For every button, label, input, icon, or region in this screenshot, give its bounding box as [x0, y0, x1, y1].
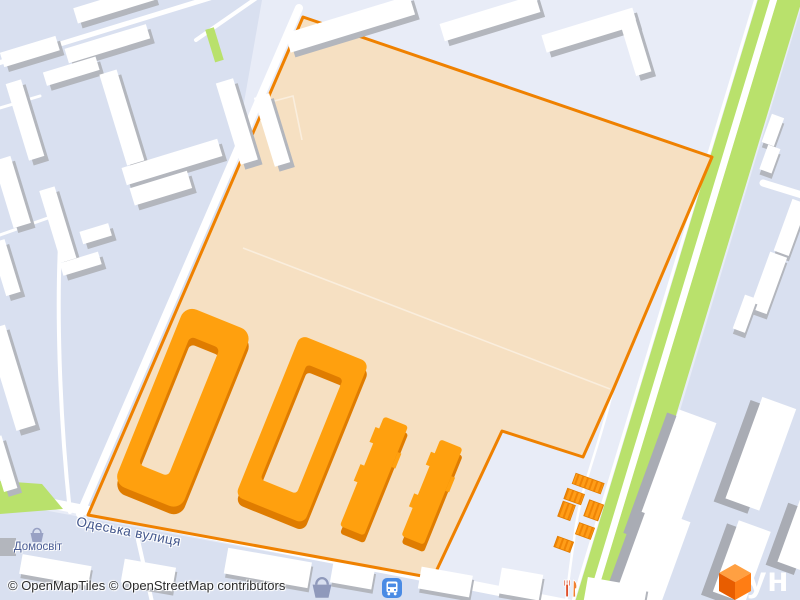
map-canvas[interactable]: Одеська вулиця Домосвіт © OpenMapTiles ©… — [0, 0, 800, 600]
base-map — [0, 0, 800, 600]
poi-label: Домосвіт — [8, 541, 68, 553]
lun-logo: лун — [718, 562, 789, 598]
bus-icon[interactable] — [382, 578, 402, 598]
cube-logo-icon — [718, 562, 752, 600]
map-attribution: © OpenMapTiles © OpenStreetMap contribut… — [8, 578, 285, 593]
